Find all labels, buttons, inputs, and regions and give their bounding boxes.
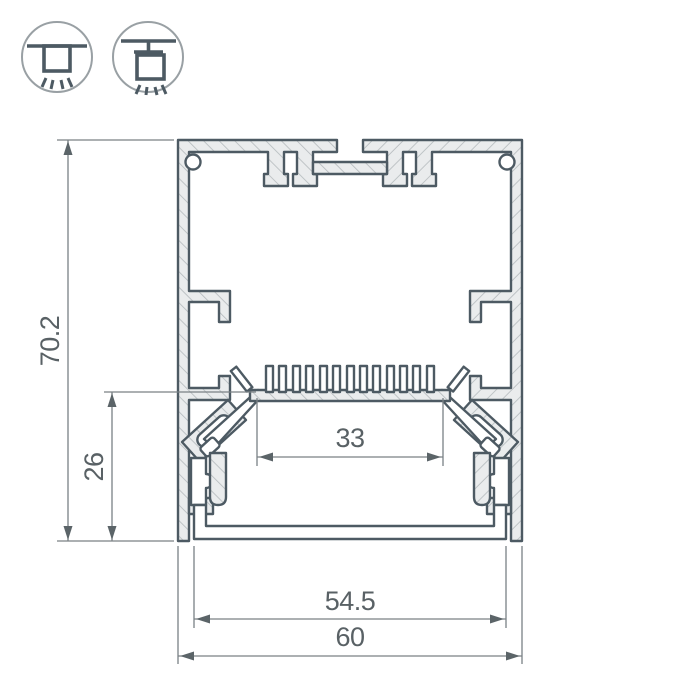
surface-mount-icon	[22, 22, 92, 92]
profile-cross-section	[178, 140, 522, 541]
top-channel-bridge	[313, 162, 387, 174]
dimension-label-mount-height: 26	[79, 452, 109, 481]
technical-drawing-page: 70.2 26 33 54.5 60	[0, 0, 700, 700]
pendant-mount-icon	[113, 22, 183, 95]
drawing-canvas: 70.2 26 33 54.5 60	[0, 0, 700, 700]
dimension-label-overall-width: 60	[335, 622, 364, 652]
icon-circle	[22, 22, 92, 92]
dimension-label-height: 70.2	[35, 316, 65, 367]
profile-right-half	[363, 140, 522, 541]
dimension-label-led-shelf-width: 33	[335, 423, 364, 453]
dimension-led-shelf-width: 33	[257, 398, 443, 466]
diffuser-tray	[194, 505, 506, 539]
heatsink-fins	[231, 366, 469, 392]
dimension-window-width: 54.5	[194, 546, 506, 628]
dimension-label-window-width: 54.5	[325, 586, 376, 616]
profile-left-half	[178, 140, 337, 541]
icon-circle	[113, 22, 183, 92]
